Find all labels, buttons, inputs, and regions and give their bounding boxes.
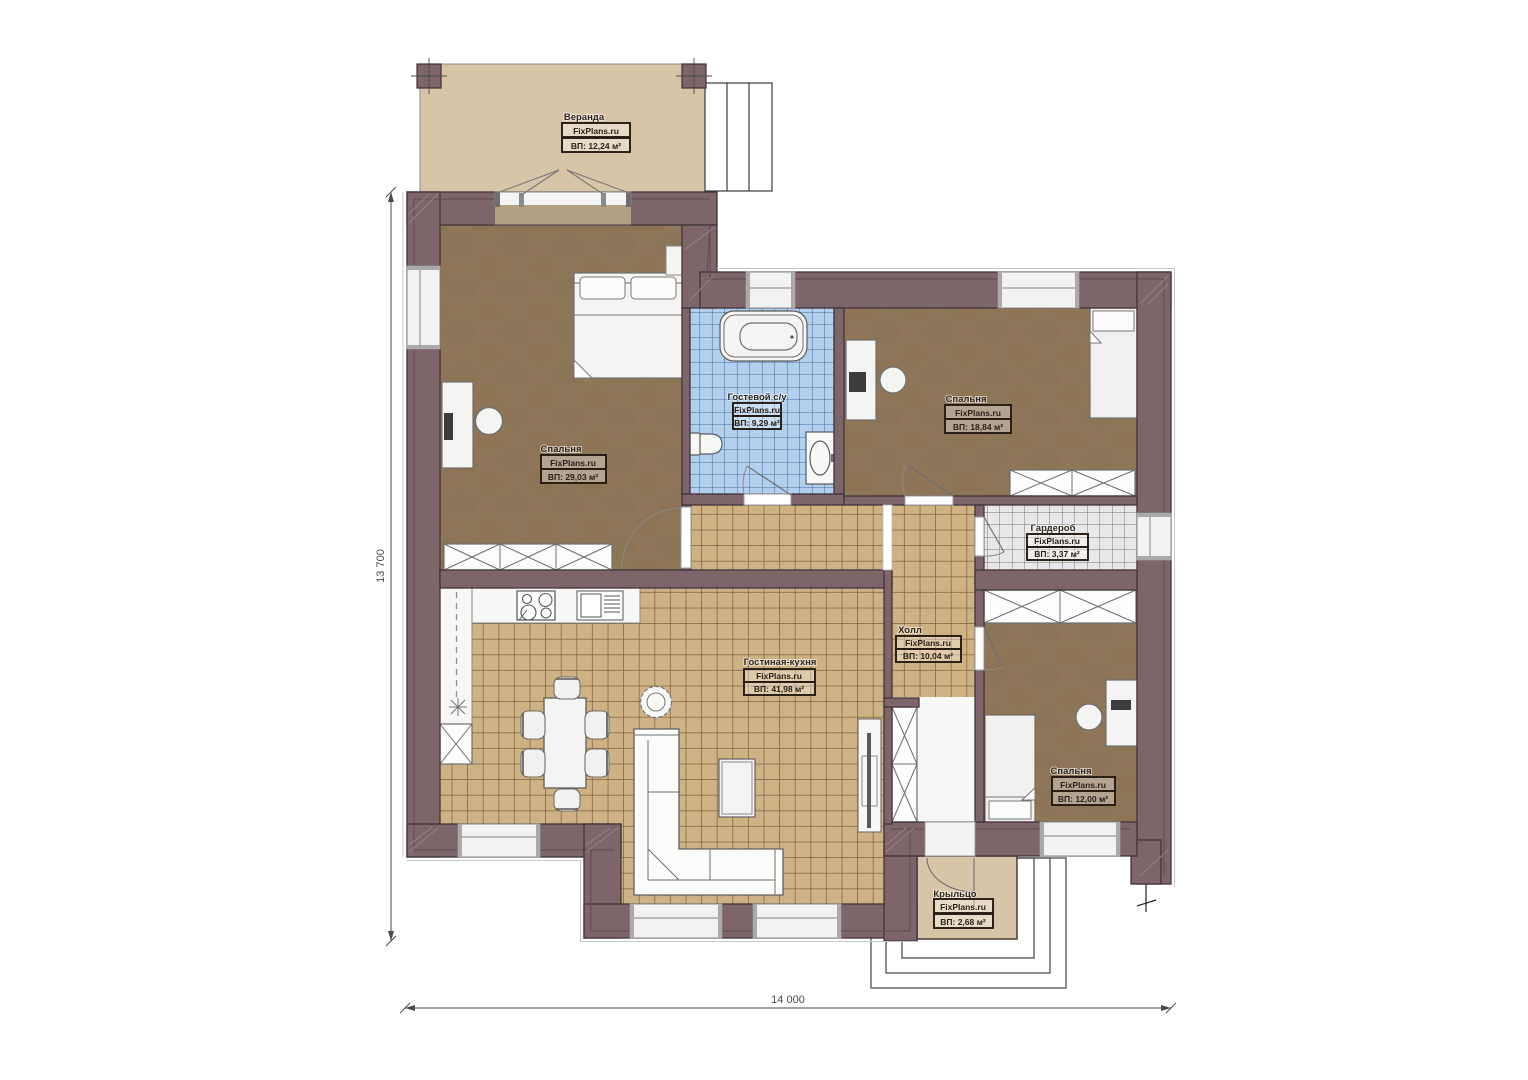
svg-text:Гостевой с/у: Гостевой с/у bbox=[727, 392, 787, 403]
svg-text:FixPlans.ru: FixPlans.ru bbox=[550, 458, 596, 468]
svg-text:ВП: 10,04 м²: ВП: 10,04 м² bbox=[903, 651, 953, 661]
svg-text:13 700: 13 700 bbox=[375, 549, 387, 583]
svg-text:Гардероб: Гардероб bbox=[1031, 523, 1076, 534]
svg-text:FixPlans.ru: FixPlans.ru bbox=[955, 408, 1001, 418]
svg-text:ВП: 3,37 м²: ВП: 3,37 м² bbox=[1034, 549, 1080, 559]
svg-text:Спальня: Спальня bbox=[1050, 766, 1091, 777]
svg-text:FixPlans.ru: FixPlans.ru bbox=[940, 902, 986, 912]
svg-text:FixPlans.ru: FixPlans.ru bbox=[1034, 536, 1080, 546]
svg-text:Холл: Холл bbox=[898, 625, 922, 636]
svg-text:ВП: 9,29 м²: ВП: 9,29 м² bbox=[734, 418, 780, 428]
svg-text:FixPlans.ru: FixPlans.ru bbox=[573, 126, 619, 136]
svg-text:Спальня: Спальня bbox=[945, 394, 986, 405]
svg-text:Веранда: Веранда bbox=[564, 112, 605, 123]
svg-text:ВП: 29,03 м²: ВП: 29,03 м² bbox=[548, 472, 598, 482]
svg-text:FixPlans.ru: FixPlans.ru bbox=[756, 671, 802, 681]
svg-text:Спальня: Спальня bbox=[540, 444, 581, 455]
svg-text:ВП: 12,00 м²: ВП: 12,00 м² bbox=[1058, 794, 1108, 804]
svg-text:ВП: 12,24 м²: ВП: 12,24 м² bbox=[571, 141, 621, 151]
svg-text:FixPlans.ru: FixPlans.ru bbox=[734, 405, 780, 415]
svg-text:14 000: 14 000 bbox=[771, 994, 805, 1006]
svg-text:ВП: 18,84 м²: ВП: 18,84 м² bbox=[953, 422, 1003, 432]
svg-text:ВП: 41,98 м²: ВП: 41,98 м² bbox=[754, 684, 804, 694]
svg-text:Гостиная-кухня: Гостиная-кухня bbox=[744, 657, 817, 668]
svg-text:FixPlans.ru: FixPlans.ru bbox=[905, 638, 951, 648]
svg-text:ВП: 2,68 м²: ВП: 2,68 м² bbox=[940, 917, 986, 927]
svg-text:FixPlans.ru: FixPlans.ru bbox=[1060, 780, 1106, 790]
